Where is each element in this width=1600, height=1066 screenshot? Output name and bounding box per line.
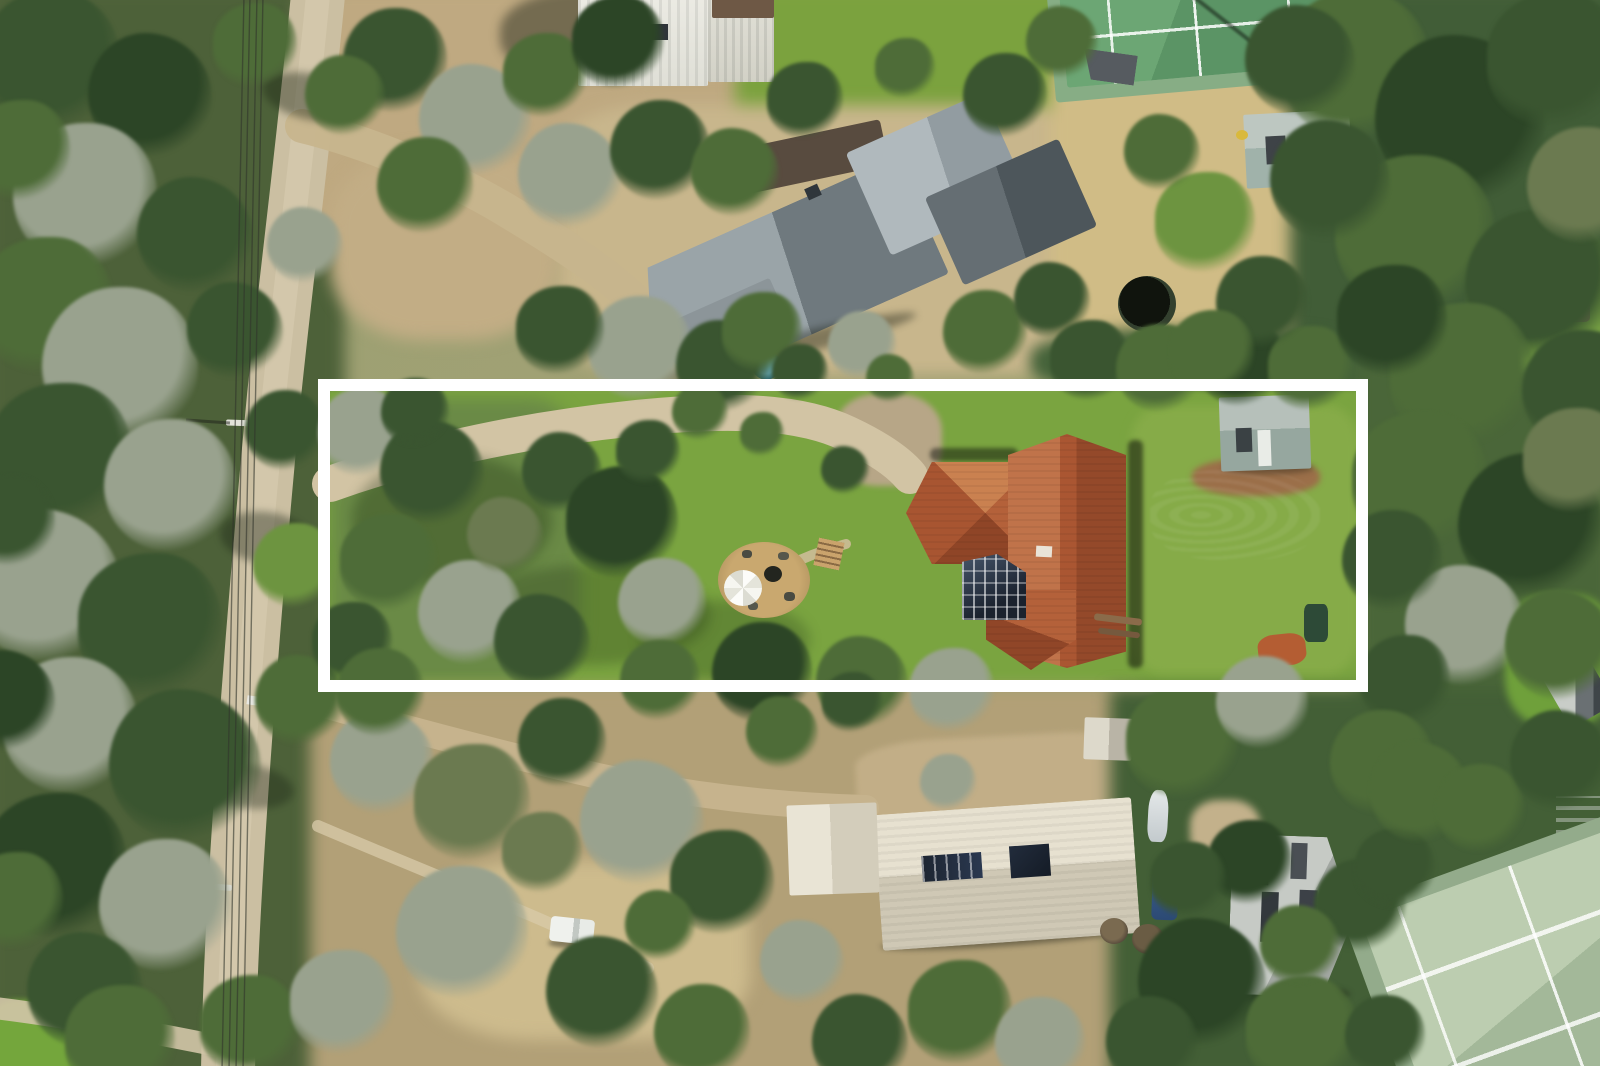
boat-trailer xyxy=(1147,790,1170,843)
tree xyxy=(618,558,706,646)
fire-pit xyxy=(764,566,782,582)
tree xyxy=(1342,510,1442,610)
tree xyxy=(1216,656,1308,748)
tree xyxy=(588,296,692,400)
tree xyxy=(1246,976,1358,1066)
tree xyxy=(1124,114,1200,190)
tree xyxy=(213,3,297,87)
tree xyxy=(572,0,664,88)
tree xyxy=(245,390,325,470)
tree xyxy=(1026,6,1098,78)
tree xyxy=(104,419,236,551)
tree xyxy=(746,696,818,768)
tree xyxy=(821,446,869,494)
tree xyxy=(875,38,935,98)
tree xyxy=(1436,764,1524,852)
tree xyxy=(1150,842,1226,918)
tree xyxy=(620,640,700,720)
tree xyxy=(625,890,695,960)
patio-chair xyxy=(784,592,795,601)
roof-vent xyxy=(1036,546,1053,558)
tree xyxy=(767,62,843,138)
tree xyxy=(910,648,994,732)
water-tank xyxy=(1100,918,1128,944)
dark-garden-structure xyxy=(1304,604,1328,642)
tree xyxy=(920,754,976,810)
tree xyxy=(518,698,606,786)
tree xyxy=(654,984,750,1066)
tree xyxy=(616,420,680,484)
tree xyxy=(381,378,449,446)
patio-chair xyxy=(742,550,752,558)
white-umbrella xyxy=(724,570,762,606)
tree xyxy=(822,672,882,732)
tree xyxy=(1345,995,1425,1066)
brown-deck xyxy=(712,0,774,18)
tree xyxy=(1337,265,1447,375)
tree xyxy=(290,950,394,1054)
mower-stripes xyxy=(1150,470,1320,560)
yellow-object xyxy=(1236,130,1248,140)
tree xyxy=(1510,710,1600,810)
tree xyxy=(336,648,424,736)
tree xyxy=(267,207,343,283)
boundary-shed-door xyxy=(1257,430,1271,466)
tree xyxy=(467,497,543,573)
tree xyxy=(691,128,779,216)
tree xyxy=(672,384,728,440)
tree xyxy=(305,55,385,135)
tree xyxy=(516,286,604,374)
tree xyxy=(494,594,590,690)
tree xyxy=(1260,905,1340,985)
tree xyxy=(1487,0,1600,128)
tree xyxy=(253,523,337,607)
tree xyxy=(760,920,844,1004)
terracotta-roof-shadow-top xyxy=(930,448,1018,461)
tree xyxy=(866,354,914,402)
solar-panel xyxy=(921,852,983,882)
tree xyxy=(740,412,784,456)
tree xyxy=(772,344,828,400)
tree xyxy=(1170,310,1254,394)
tree xyxy=(200,975,300,1066)
aerial-photo xyxy=(0,0,1600,1066)
tree xyxy=(502,812,582,892)
tree xyxy=(396,866,528,998)
solar-panel xyxy=(1009,844,1051,879)
tree xyxy=(187,282,283,378)
tree xyxy=(377,137,473,233)
skylight-strip xyxy=(1290,843,1307,880)
patio-chair xyxy=(778,552,789,560)
gabled-annex xyxy=(786,802,879,895)
boundary-shed-vent xyxy=(1236,428,1253,453)
